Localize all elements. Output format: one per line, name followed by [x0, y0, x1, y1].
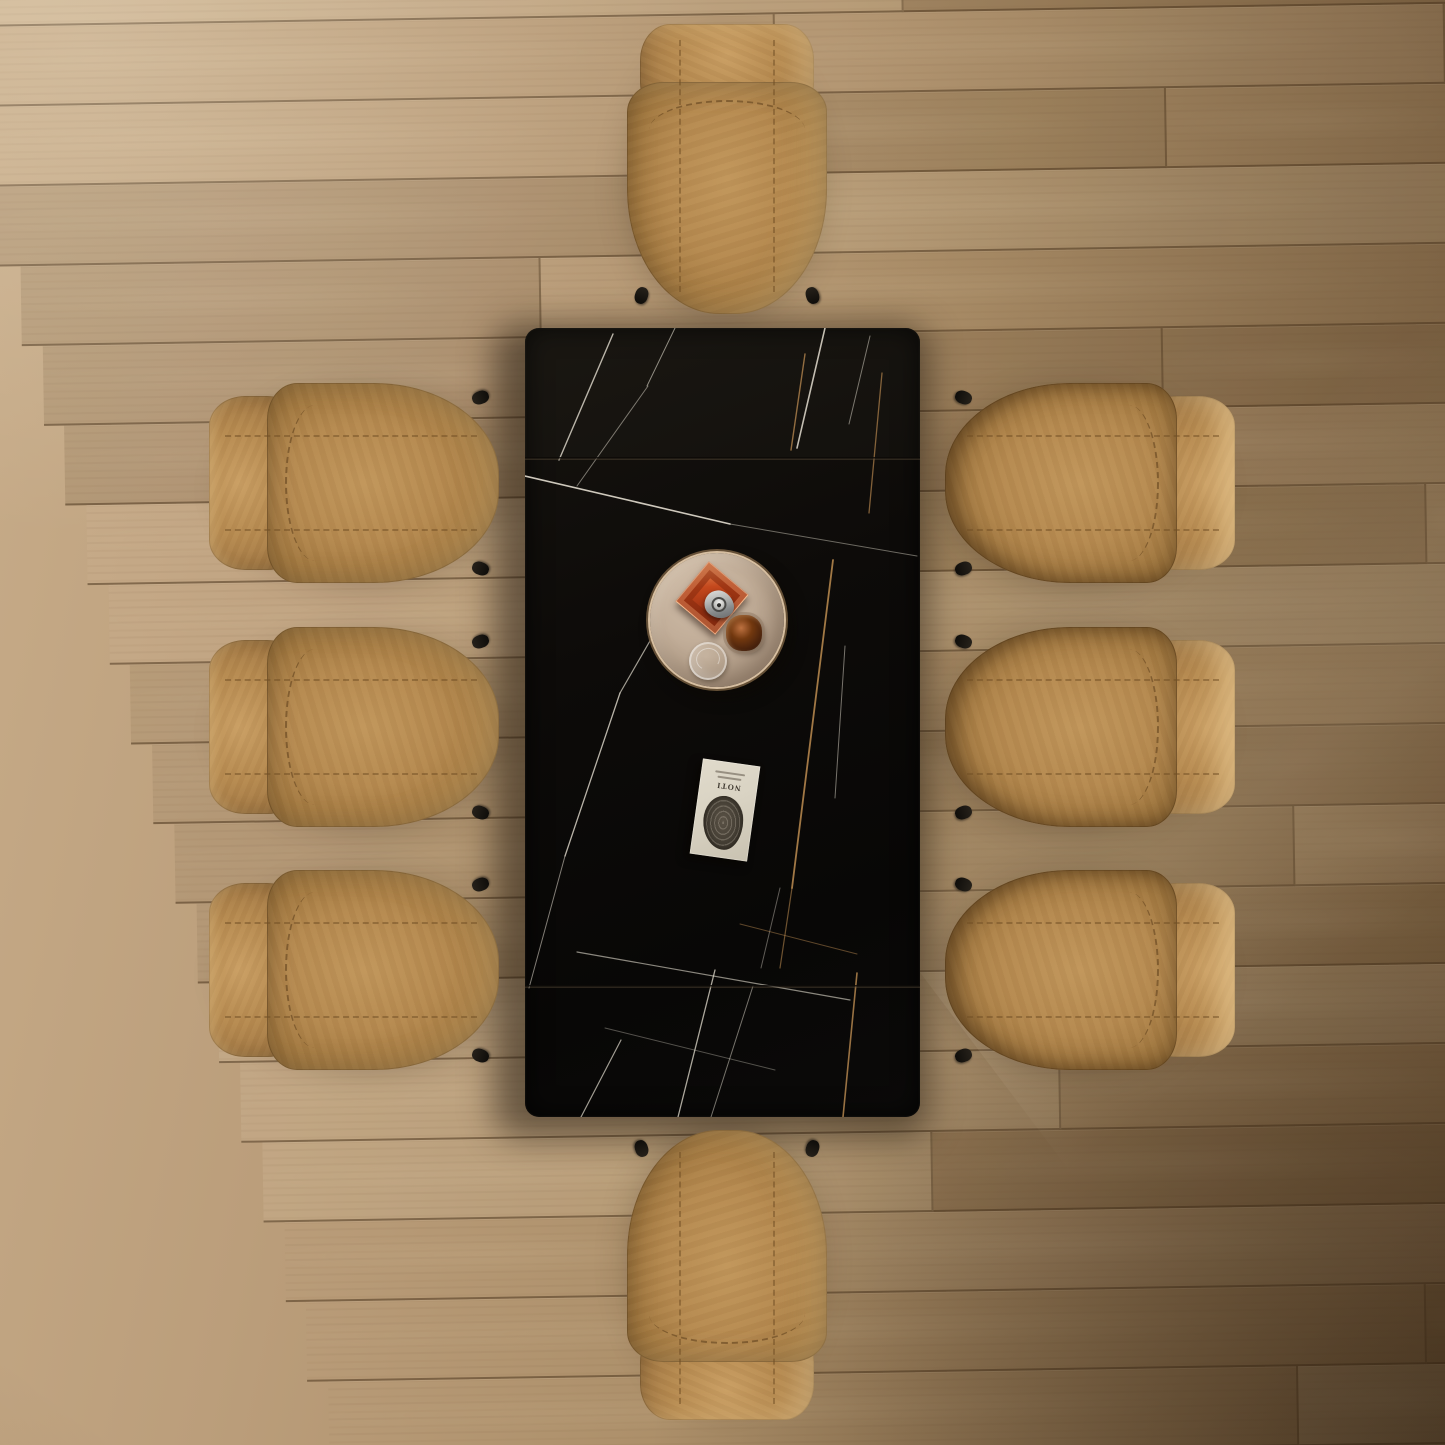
chair-stitch-line [225, 1016, 477, 1018]
chair-stitch-line [967, 1016, 1219, 1018]
floor-plank [932, 1123, 1445, 1212]
dining-table [525, 328, 920, 1117]
floor-plank [1294, 803, 1445, 887]
chair-stitch-line [679, 40, 681, 292]
floor-plank [262, 1132, 933, 1223]
chair-leg-icon [633, 1138, 651, 1158]
floor-plank [804, 1203, 1445, 1294]
clear-glass [689, 642, 727, 680]
chair-leg-icon [470, 560, 490, 578]
chair-stitch-line [967, 435, 1219, 437]
chair-stitch-line [225, 435, 477, 437]
chair-leg-icon [633, 285, 651, 305]
chair-stitch-line [773, 40, 775, 292]
dining-chair-right-2 [945, 627, 1235, 827]
floor-plank [1426, 1283, 1445, 1365]
booklet-title: NOTI [716, 781, 741, 792]
floor-plank [0, 96, 648, 187]
dining-set-top-view: NOTI [0, 0, 1445, 1445]
chair-stitch-line [225, 529, 477, 531]
chair-stitch-line [967, 679, 1219, 681]
chair-leg-icon [953, 633, 973, 651]
amber-glass [726, 615, 762, 651]
chair-leg-icon [953, 876, 973, 894]
chair-leg-icon [470, 804, 490, 822]
chair-leg-icon [953, 1047, 973, 1065]
floor-plank [0, 176, 670, 267]
perfume-cap [708, 594, 729, 615]
chair-leg-icon [470, 389, 490, 407]
chair-leg-icon [953, 389, 973, 407]
marble-veins [525, 328, 920, 1117]
chair-leg-icon [953, 804, 973, 822]
fingerprint-art [702, 795, 744, 850]
dining-chair-left-2 [209, 627, 499, 827]
chair-leg-icon [804, 1138, 822, 1158]
slab-seam-bottom [525, 985, 920, 988]
chair-leg-icon [470, 1047, 490, 1065]
dining-chair-left-1 [209, 383, 499, 583]
chair-stitch-line [967, 529, 1219, 531]
chair-leg-icon [470, 633, 490, 651]
chair-stitch-line [679, 1152, 681, 1404]
dining-chair-right-3 [945, 870, 1235, 1070]
chair-stitch-line [773, 1152, 775, 1404]
dining-chair-top [627, 24, 827, 314]
chair-stitch-line [967, 922, 1219, 924]
chair-stitch-line [225, 922, 477, 924]
floor-plank [1426, 483, 1445, 564]
floor-plank [774, 4, 1445, 95]
dining-chair-right-1 [945, 383, 1235, 583]
floor-plank [1166, 83, 1445, 168]
chair-stitch-line [967, 773, 1219, 775]
chair-leg-icon [953, 560, 973, 578]
dining-chair-bottom [627, 1130, 827, 1420]
chair-stitch-line [225, 773, 477, 775]
chair-stitch-line [225, 679, 477, 681]
chair-leg-icon [470, 876, 490, 894]
floor-plank [1298, 1363, 1445, 1445]
floor-plank [20, 258, 541, 346]
dining-chair-left-3 [209, 870, 499, 1070]
slab-seam-top [525, 457, 920, 460]
chair-leg-icon [804, 285, 822, 305]
